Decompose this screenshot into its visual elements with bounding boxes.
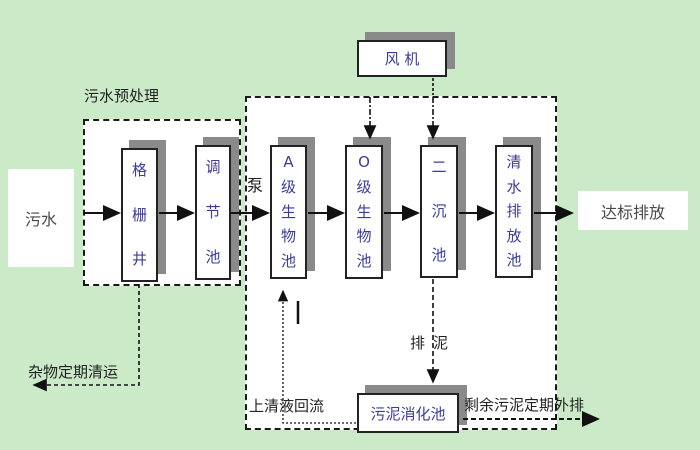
fan-box: 风 机	[357, 40, 447, 77]
sludge-discharge-label: 排泥	[410, 334, 456, 352]
box-char: 节	[205, 205, 220, 220]
box-char: 清	[506, 155, 521, 170]
box-char: 级	[356, 180, 371, 195]
box-char: 池	[356, 254, 371, 269]
clear-water-tank-box: 清水排放池	[495, 145, 533, 278]
box-char: 排	[506, 204, 521, 219]
box-char: 池	[281, 254, 296, 269]
supernatant-return-label: 上清液回流	[249, 397, 324, 415]
box-char: 池	[431, 248, 446, 263]
grid-well-box: 格栅井	[121, 148, 158, 282]
preprocess-label: 污水预处理	[84, 87, 159, 105]
box-char: 物	[356, 229, 371, 244]
box-char: 格	[132, 163, 147, 178]
discharge-label: 达标排放	[601, 199, 665, 223]
box-char: 栅	[132, 208, 147, 223]
box-char: 井	[132, 252, 147, 267]
fan-label: 风 机	[385, 48, 420, 69]
box-char: 生	[281, 205, 296, 220]
excess-sludge-out-label: 剩余污泥定期外排	[464, 396, 584, 414]
discharge-box: 达标排放	[578, 191, 688, 230]
influent-box: 污水	[8, 169, 74, 267]
box-char: 物	[281, 229, 296, 244]
box-char: 池	[506, 253, 521, 268]
sludge-digestion-tank-box: 污泥消化池	[357, 393, 459, 433]
box-char: 沉	[431, 204, 446, 219]
box-char: 生	[356, 205, 371, 220]
o-bio-tank-box: O级生物池	[345, 145, 383, 279]
influent-label: 污水	[25, 206, 57, 230]
box-char: O	[358, 155, 370, 170]
box-char: 池	[205, 250, 220, 265]
box-char: A	[283, 155, 293, 170]
box-char: 水	[506, 180, 521, 195]
waste-removal-label: 杂物定期清运	[28, 363, 118, 381]
pump-label: 泵	[247, 176, 263, 195]
secondary-tank-box: 二沉池	[420, 145, 458, 278]
regulating-tank-box: 调节池	[195, 145, 231, 280]
diagram-canvas: 污水 达标排放 风 机 格栅井 调节池 A级生物池 O级生物池 二沉池 清水排放…	[0, 0, 700, 450]
box-char: 级	[281, 180, 296, 195]
sludge-digestion-label: 污泥消化池	[370, 403, 445, 424]
box-char: 调	[205, 160, 220, 175]
box-char: 放	[506, 229, 521, 244]
a-bio-tank-box: A级生物池	[270, 145, 307, 279]
box-char: 二	[431, 160, 446, 175]
